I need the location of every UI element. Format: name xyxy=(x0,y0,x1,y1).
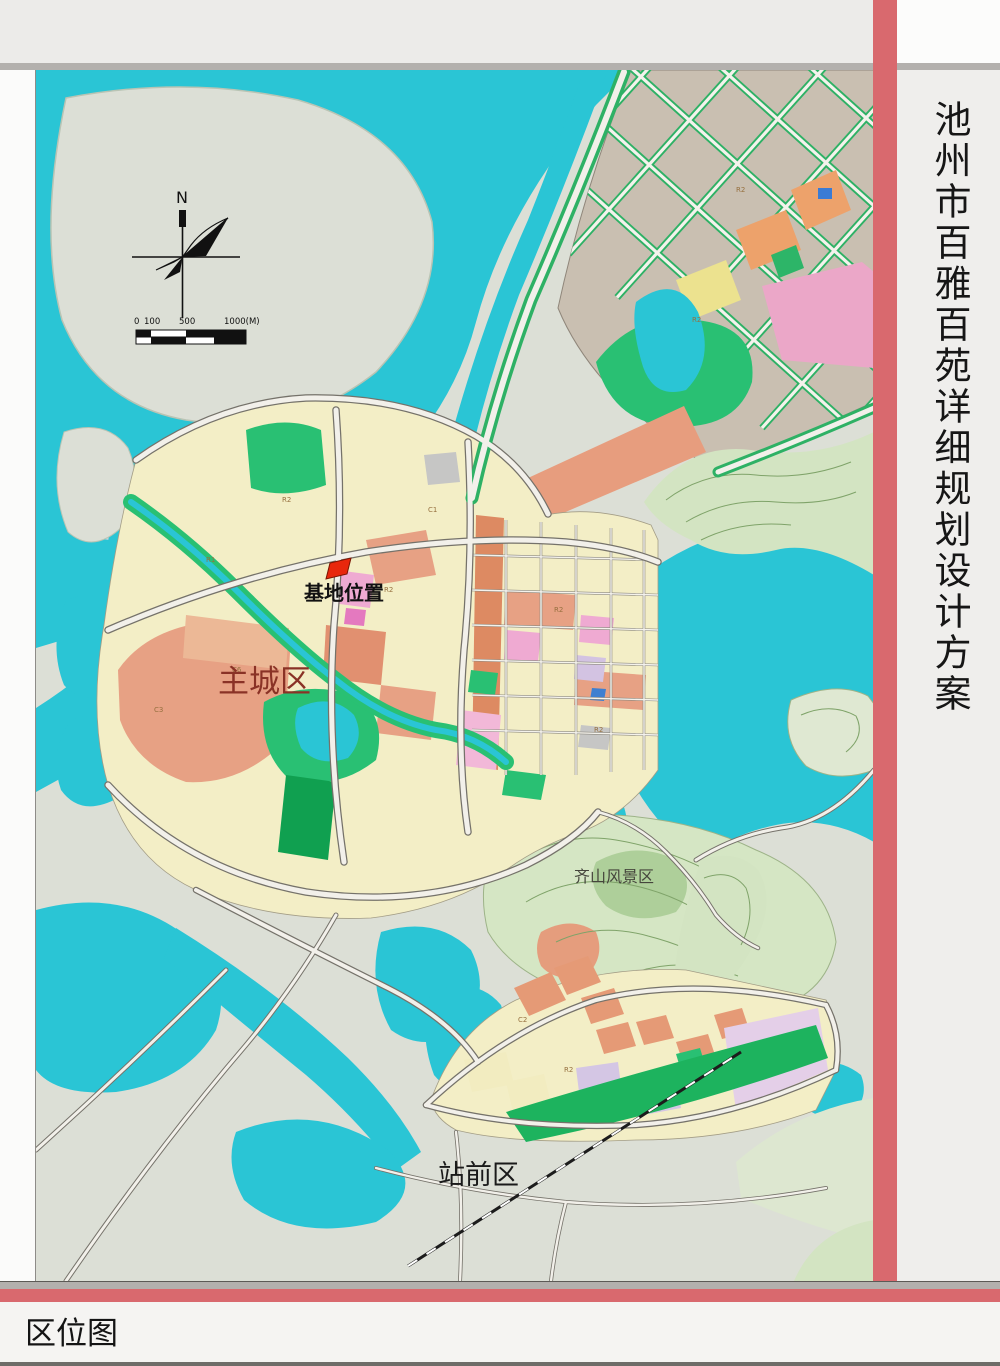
station-label: 站前区 xyxy=(438,1160,519,1190)
city-violet xyxy=(574,655,606,682)
map-left-margin xyxy=(0,70,36,1281)
city-pink-2 xyxy=(504,630,541,662)
zone-code: C2 xyxy=(518,1016,527,1024)
city-gray-1 xyxy=(424,452,460,485)
north-label: N xyxy=(176,188,188,207)
zone-code: C1 xyxy=(428,506,437,514)
top-divider-line xyxy=(0,63,1000,70)
map-caption: 区位图 xyxy=(25,1308,118,1353)
west-island xyxy=(51,87,433,423)
zone-code: R2 xyxy=(594,726,603,734)
red-horizontal-band xyxy=(0,1289,1000,1302)
zone-code: R1 xyxy=(206,556,215,564)
main-city-label: 主城区 xyxy=(218,664,311,699)
scale-tick-500: 500 xyxy=(179,317,195,327)
city-park-dark xyxy=(278,775,336,860)
zone-code: R2 xyxy=(692,316,701,324)
zone-code: R2 xyxy=(554,606,563,614)
caption-strip: 区位图 xyxy=(0,1302,1000,1362)
scale-tick-100: 100 xyxy=(144,317,160,327)
city-pink-3 xyxy=(579,615,614,645)
zone-code: R2 xyxy=(282,496,291,504)
zone-code: C3 xyxy=(154,706,163,714)
scanned-plan-page: R2 R2 R2 R2 C6 C3 R2 R2 C2 R2 R1 C1 N xyxy=(0,0,1000,1366)
city-park-small-1 xyxy=(468,670,498,695)
city-park-north xyxy=(246,423,326,494)
zone-code: R2 xyxy=(384,586,393,594)
zone-code: R2 xyxy=(736,186,745,194)
right-top-strip xyxy=(897,0,1000,63)
page-title: 池州市百雅百苑详细规划设计方案 xyxy=(930,70,967,1281)
zone-code: R2 xyxy=(564,1066,573,1074)
city-salmon-3 xyxy=(366,530,436,585)
red-vertical-band xyxy=(873,0,897,1366)
city-park-small-2 xyxy=(502,770,546,800)
page-bottom-edge xyxy=(0,1362,1000,1366)
title-margin: 池州市百雅百苑详细规划设计方案 xyxy=(897,70,1000,1281)
location-map-svg: R2 R2 R2 R2 C6 C3 R2 R2 C2 R2 R1 C1 N xyxy=(36,70,874,1281)
location-map: R2 R2 R2 R2 C6 C3 R2 R2 C2 R2 R1 C1 N xyxy=(36,70,874,1281)
city-magenta xyxy=(344,608,366,626)
site-label: 基地位置 xyxy=(304,581,384,605)
scale-tick-1000: 1000(M) xyxy=(224,317,260,327)
ne-blue-block xyxy=(818,188,832,199)
paper-top-strip xyxy=(0,0,1000,63)
scale-tick-0: 0 xyxy=(134,317,139,327)
scenic-label: 齐山风景区 xyxy=(574,868,654,886)
